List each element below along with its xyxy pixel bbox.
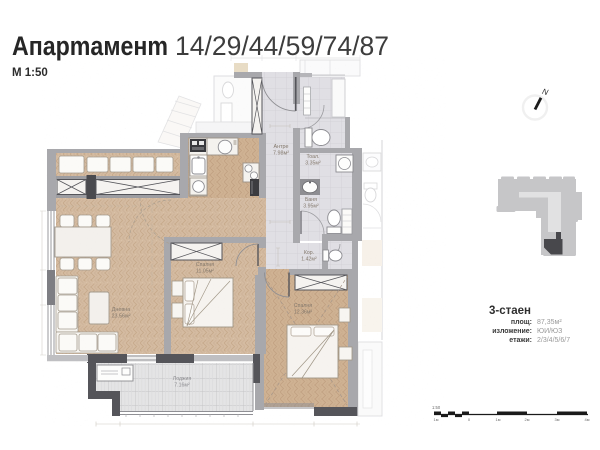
svg-text:етажи:: етажи: [509, 337, 532, 344]
svg-text:ЮИ/ЮЗ: ЮИ/ЮЗ [537, 328, 562, 335]
svg-text:4м: 4м [585, 417, 590, 422]
svg-text:2м: 2м [525, 417, 530, 422]
svg-text:2/3/4/5/6/7: 2/3/4/5/6/7 [537, 337, 570, 344]
svg-text:14/29/44/59/74/87: 14/29/44/59/74/87 [175, 31, 389, 61]
svg-text:87,35м²: 87,35м² [537, 319, 562, 326]
svg-text:3-стаен: 3-стаен [489, 305, 531, 317]
svg-text:площ:: площ: [511, 319, 532, 326]
svg-text:изложение:: изложение: [492, 328, 532, 335]
svg-text:1м: 1м [496, 417, 501, 422]
svg-text:Апарmаменm: Апарmаменm [12, 31, 168, 61]
svg-text:3м: 3м [555, 417, 560, 422]
